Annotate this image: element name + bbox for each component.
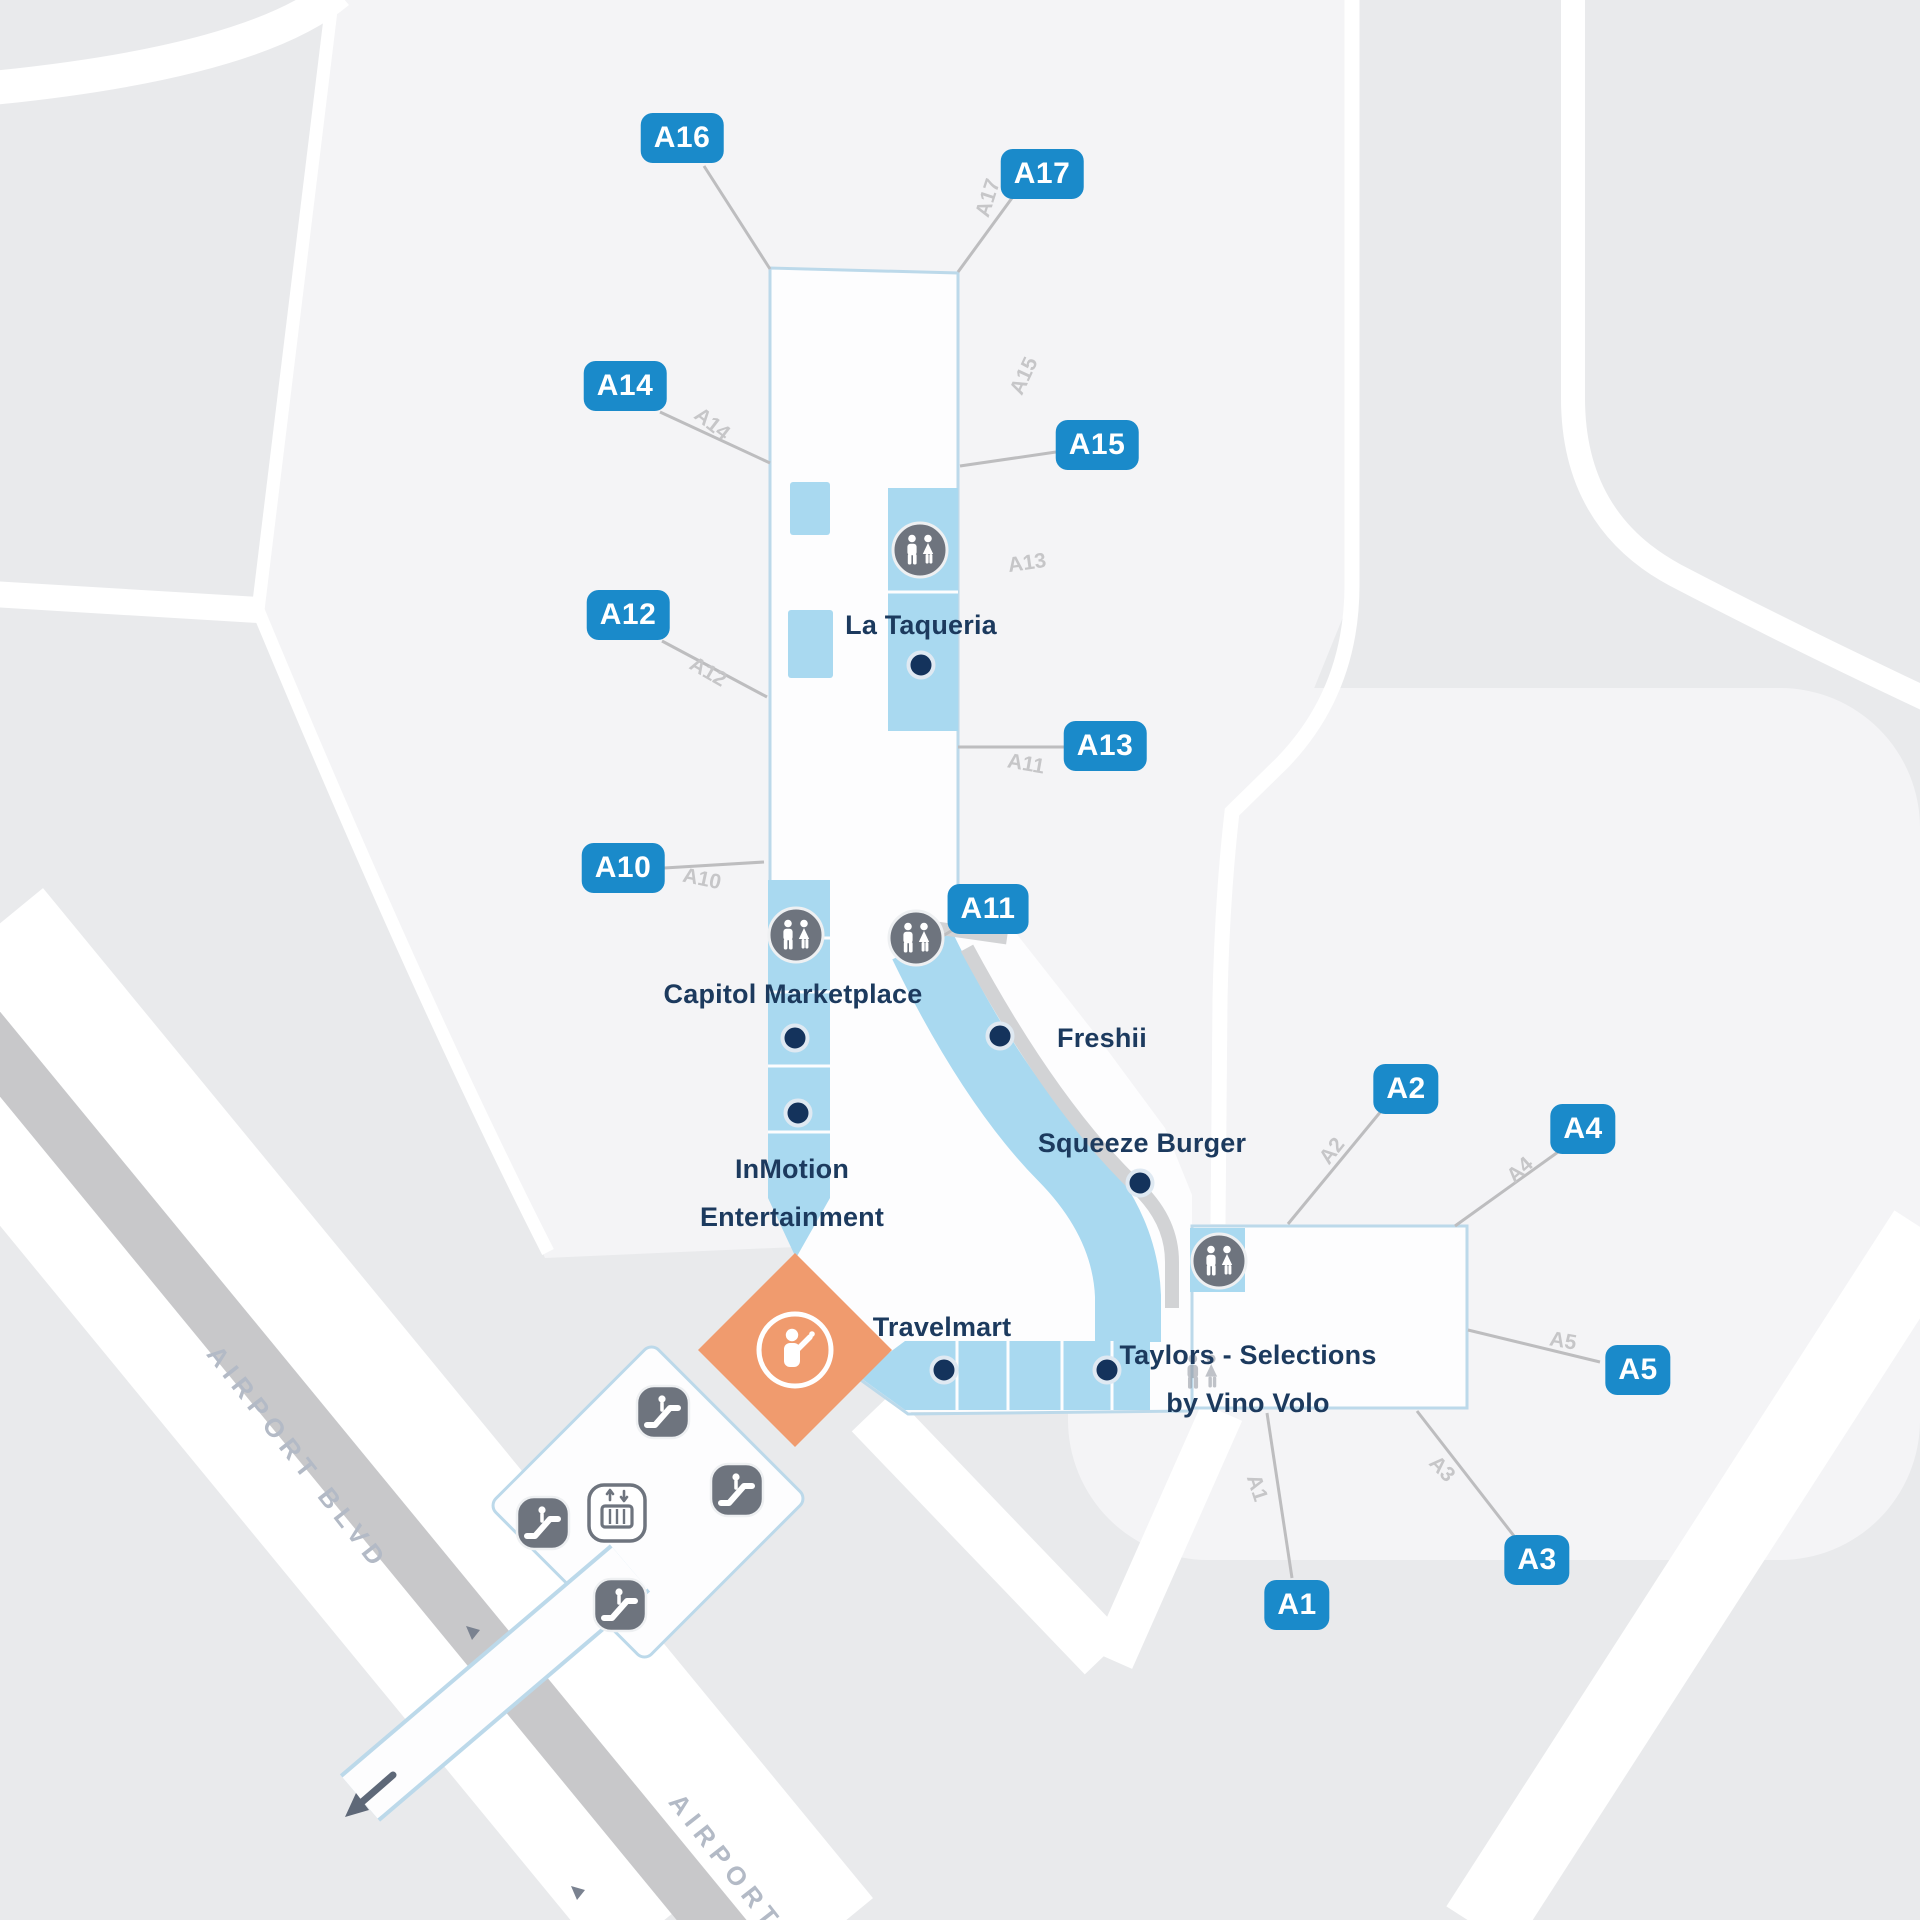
poi-dot-capitol-marketplace[interactable] [781,1024,810,1053]
poi-dot-inmotion-entertainment[interactable] [784,1099,813,1128]
gate-badge-a1[interactable]: A1 [1264,1580,1329,1630]
poi-label-la-taqueria[interactable]: La Taqueria [845,601,997,649]
stand-tag-a1: A1 [1243,1472,1271,1504]
gate-badge-a5[interactable]: A5 [1605,1345,1670,1395]
stand-tag-a11: A11 [1006,750,1046,777]
poi-dot-freshii[interactable] [986,1022,1015,1051]
map-overlays: AIRPORT BLVD AIRPORT BLVD A16A17A14A15A1… [0,0,1920,1920]
poi-label-travelmart[interactable]: Travelmart [873,1303,1012,1351]
gate-badge-a2[interactable]: A2 [1373,1064,1438,1114]
stand-tag-a15: A15 [1006,354,1041,398]
poi-label-taylors-selections-by-vino-volo[interactable]: Taylors - Selections by Vino Volo [1119,1331,1376,1427]
stand-tag-a5: A5 [1548,1328,1578,1353]
road-label-airport-blvd: AIRPORT BLVD [202,1341,393,1575]
poi-label-inmotion-entertainment[interactable]: InMotion Entertainment [700,1145,884,1241]
gate-badge-a3[interactable]: A3 [1504,1535,1569,1585]
airport-map: AIRPORT BLVD AIRPORT BLVD A16A17A14A15A1… [0,0,1920,1920]
gate-badge-a15[interactable]: A15 [1056,420,1139,470]
stand-tag-a10: A10 [681,865,723,894]
gate-badge-a17[interactable]: A17 [1001,149,1084,199]
poi-dot-travelmart[interactable] [930,1356,959,1385]
stand-tag-a12: A12 [686,653,730,690]
stand-tag-a13: A13 [1006,550,1047,576]
stand-tag-a4: A4 [1503,1153,1537,1187]
gate-badge-a10[interactable]: A10 [582,843,665,893]
poi-label-freshii[interactable]: Freshii [1057,1014,1147,1062]
poi-dot-squeeze-burger[interactable] [1126,1169,1155,1198]
stand-tag-a17: A17 [972,176,1004,219]
road-label-airport-blvd-2: AIRPORT BLVD [664,1789,855,1920]
gate-badge-a11[interactable]: A11 [948,884,1029,934]
gate-badge-a14[interactable]: A14 [584,361,667,411]
poi-label-squeeze-burger[interactable]: Squeeze Burger [1038,1119,1246,1167]
stand-tag-a2: A2 [1315,1134,1348,1168]
poi-dot-la-taqueria[interactable] [907,651,936,680]
gate-badge-a4[interactable]: A4 [1550,1104,1615,1154]
gate-badge-a16[interactable]: A16 [641,113,724,163]
gate-badge-a12[interactable]: A12 [587,590,670,640]
gate-badge-a13[interactable]: A13 [1064,721,1147,771]
poi-label-capitol-marketplace[interactable]: Capitol Marketplace [664,970,923,1018]
poi-dot-travelmart[interactable] [1093,1356,1122,1385]
stand-tag-a14: A14 [690,404,733,444]
stand-tag-a3: A3 [1425,1452,1459,1486]
